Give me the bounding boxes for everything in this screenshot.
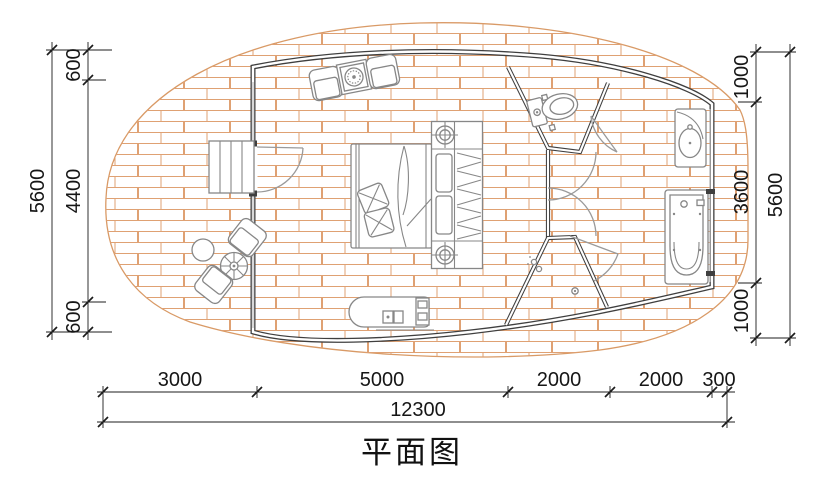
tub-handle [697,200,704,206]
wardrobe-shelf-2 [436,196,452,234]
shower-head-2 [536,266,541,271]
tub-jet-1 [673,213,675,215]
bed [351,144,432,248]
tub-inner [670,195,703,275]
dim-bottom-total-12300: 12300 [390,399,446,421]
dim-right-1000-top: 1000 [731,55,753,100]
floor-plan-canvas: 600 4400 600 5600 1000 3600 1000 5600 30… [0,0,837,496]
plan-title: 平面图 [361,435,463,470]
shower-head [531,259,536,264]
tub-jet-2 [699,213,701,215]
shower-drain-center [574,290,576,292]
dim-right-total-5600: 5600 [765,173,787,218]
storage-bench [349,297,434,330]
toilet-hinge-2 [549,124,555,130]
frame-block-2 [706,271,715,276]
frame-block-1 [706,189,715,194]
tub-jet-4 [699,249,701,251]
armchair-right [365,53,400,89]
dim-bottom-3000: 3000 [158,369,203,391]
floor-plan-page: 600 4400 600 5600 1000 3600 1000 5600 30… [0,0,837,496]
wardrobe-outline [432,122,483,269]
basin-drain [689,142,692,145]
washbasin [675,109,706,167]
tub-faucet [681,201,687,207]
chair-seat [313,77,340,100]
shower-speck-2 [527,263,529,265]
bathtub [665,190,708,284]
bench-knob [387,316,390,319]
dim-left-600-top: 600 [63,48,85,81]
dim-bottom-300: 300 [702,369,735,391]
chair-seat [370,65,397,88]
dim-bottom-2000-b: 2000 [639,369,684,391]
outdoor-round-table [192,239,214,261]
bench-cabinet-door-1 [418,301,427,308]
wardrobe-shelf-1 [436,154,452,192]
dim-left-total-5600: 5600 [27,169,49,214]
dim-bottom-2000-a: 2000 [537,369,582,391]
dim-right-1000-bottom: 1000 [731,289,753,334]
tub-jet-3 [673,249,675,251]
dim-left-4400: 4400 [63,169,85,214]
shower-speck-1 [529,256,531,258]
bench-item-2 [394,311,403,323]
bench-cabinet-door-2 [418,313,427,320]
dim-left-600-bottom: 600 [63,300,85,333]
pillow-2 [363,207,394,238]
dim-bottom-5000: 5000 [360,369,405,391]
basin-faucet [688,125,692,129]
dim-right-3600: 3600 [731,170,753,215]
wardrobe-unit [432,122,483,269]
parasol-pole [233,265,236,268]
entry-steps [209,141,254,193]
